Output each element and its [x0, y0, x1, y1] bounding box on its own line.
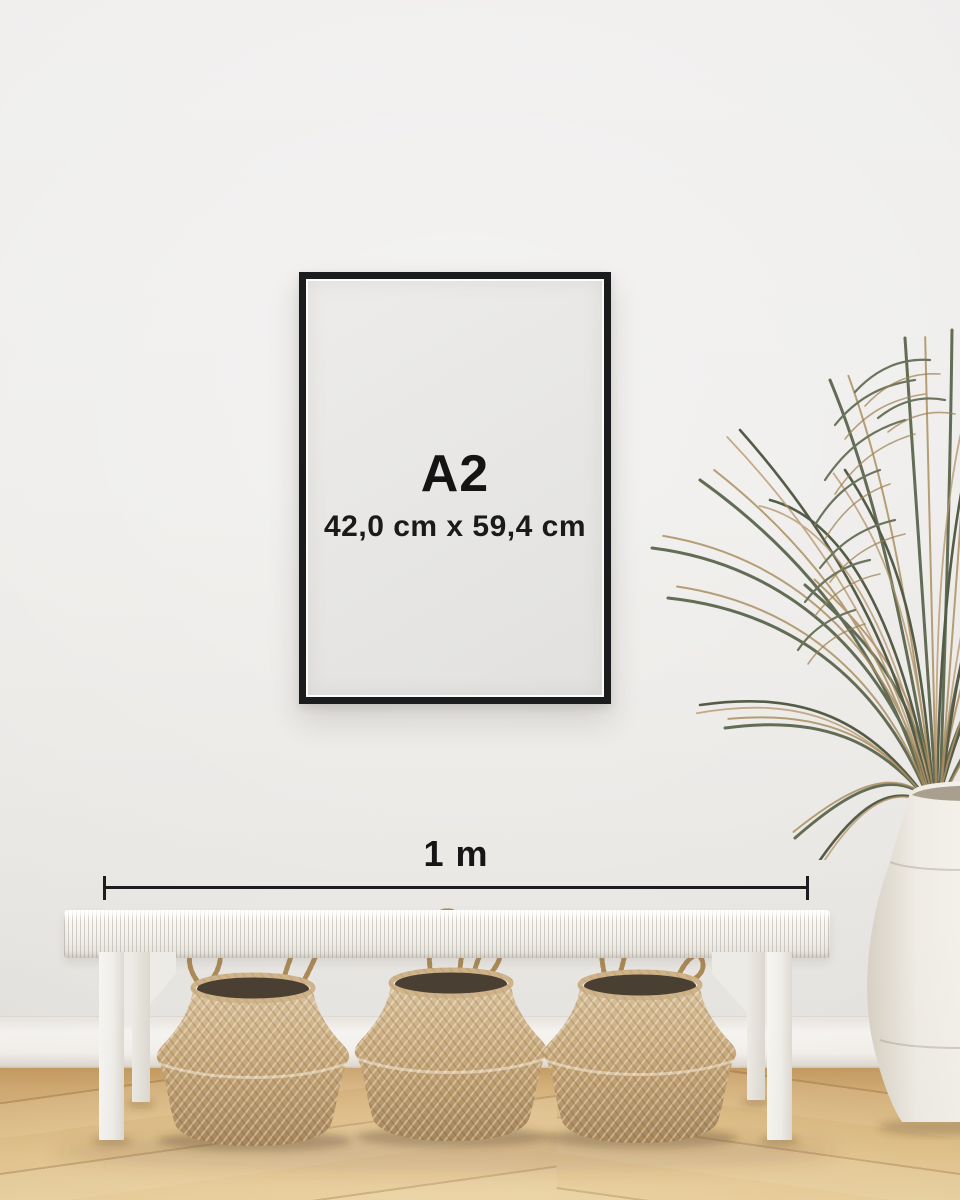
- bench-leg-front-left: [99, 952, 124, 1140]
- frame-size-label: A2: [421, 448, 489, 500]
- vase-body: [867, 781, 960, 1122]
- frame-label-block: A2 42,0 cm x 59,4 cm: [324, 448, 586, 542]
- measurement-ruler: 1 m: [103, 876, 809, 900]
- bench-leg-back-right: [747, 952, 765, 1100]
- basket-1-body: [157, 975, 349, 1146]
- picture-frame: A2 42,0 cm x 59,4 cm: [299, 272, 611, 704]
- frame-paper: A2 42,0 cm x 59,4 cm: [306, 279, 604, 697]
- bench-leg-front-right: [767, 952, 792, 1140]
- basket-2-body: [355, 970, 547, 1141]
- ruler-cap-left: [103, 876, 106, 900]
- ruler-cap-right: [806, 876, 809, 900]
- ruler-line: [103, 886, 809, 889]
- basket-3-body: [544, 972, 736, 1143]
- floor-vase: [845, 770, 960, 1140]
- ruler-label: 1 m: [423, 836, 488, 872]
- frame-dimensions-label: 42,0 cm x 59,4 cm: [324, 512, 586, 542]
- room-scene: A2 42,0 cm x 59,4 cm 1 m: [0, 0, 960, 1200]
- bench-seat: [64, 910, 830, 958]
- bench-leg-back-left: [132, 952, 150, 1102]
